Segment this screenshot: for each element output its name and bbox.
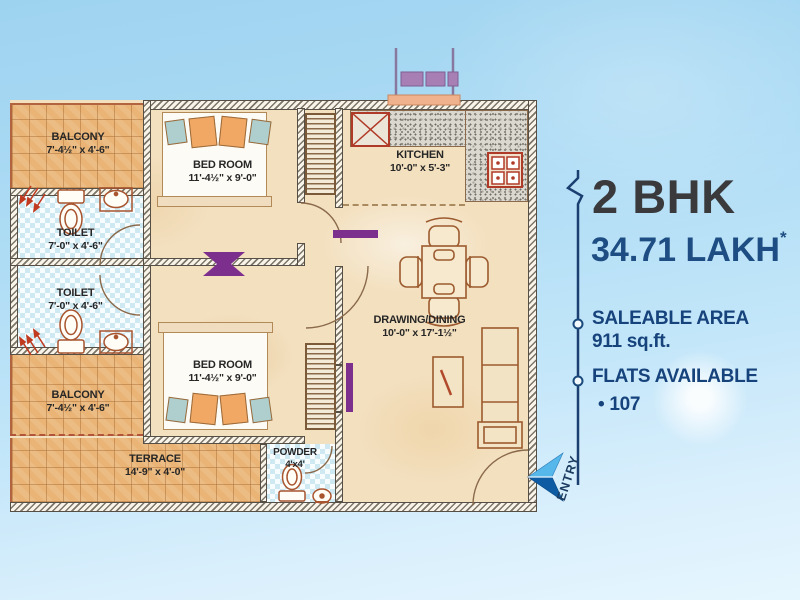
room-label-powder: POWDER4'x4' xyxy=(265,446,325,471)
room-label-terrace: TERRACE14'-9" x 4'-0" xyxy=(90,452,220,480)
shower-icon xyxy=(20,186,45,211)
entry-label: ENTRY xyxy=(551,445,584,510)
bullet-marker xyxy=(574,320,583,329)
room-label-drawing-dining: DRAWING/DINING10'-0" x 17'-1½" xyxy=(352,313,487,341)
saleable-area-label: SALEABLE AREA xyxy=(592,308,749,330)
room-label-bedroom-top: BED ROOM11'-4½" x 9'-0" xyxy=(155,158,290,186)
kitchen-sink-icon xyxy=(352,113,389,146)
toilet-wc-icon xyxy=(58,310,84,353)
tv-unit-icon xyxy=(433,357,463,407)
room-label-bedroom-bottom: BED ROOM11'-4½" x 9'-0" xyxy=(155,358,290,386)
saleable-area-value: 911 sq.ft. xyxy=(592,331,670,353)
room-label-kitchen: KITCHEN10'-0" x 5'-3" xyxy=(355,148,485,176)
price-amount: 34.71 LAKH xyxy=(591,231,780,269)
bhk-title: 2 BHK xyxy=(592,169,736,224)
window-duct-icon xyxy=(388,48,460,105)
washbasin-icon xyxy=(100,331,132,353)
washbasin-icon xyxy=(313,489,331,503)
room-label-toilet-top: TOILET7'-0" x 4'-6" xyxy=(28,226,123,254)
room-label-toilet-bottom: TOILET7'-0" x 4'-6" xyxy=(28,286,123,314)
shower-icon xyxy=(20,330,45,355)
floor-plan: BALCONY7'-4½" x 4'-6" TOILET7'-0" x 4'-6… xyxy=(10,100,537,512)
shoe-cabinet-icon xyxy=(478,422,522,448)
panel-accent-line xyxy=(568,170,583,485)
room-label-balcony-bottom: BALCONY7'-4½" x 4'-6" xyxy=(18,388,138,416)
bullet-marker xyxy=(574,377,583,386)
stove-icon xyxy=(488,153,522,187)
real-estate-floorplan-flyer: BALCONY7'-4½" x 4'-6" TOILET7'-0" x 4'-6… xyxy=(0,0,800,600)
flats-available-label: FLATS AVAILABLE xyxy=(592,366,758,388)
room-label-balcony-top: BALCONY7'-4½" x 4'-6" xyxy=(18,130,138,158)
dining-set-icon xyxy=(400,218,488,326)
flats-available-value: • 107 xyxy=(598,394,640,416)
price-asterisk: * xyxy=(780,228,787,247)
price-value: 34.71 LAKH* xyxy=(591,228,787,270)
washbasin-icon xyxy=(100,188,132,211)
